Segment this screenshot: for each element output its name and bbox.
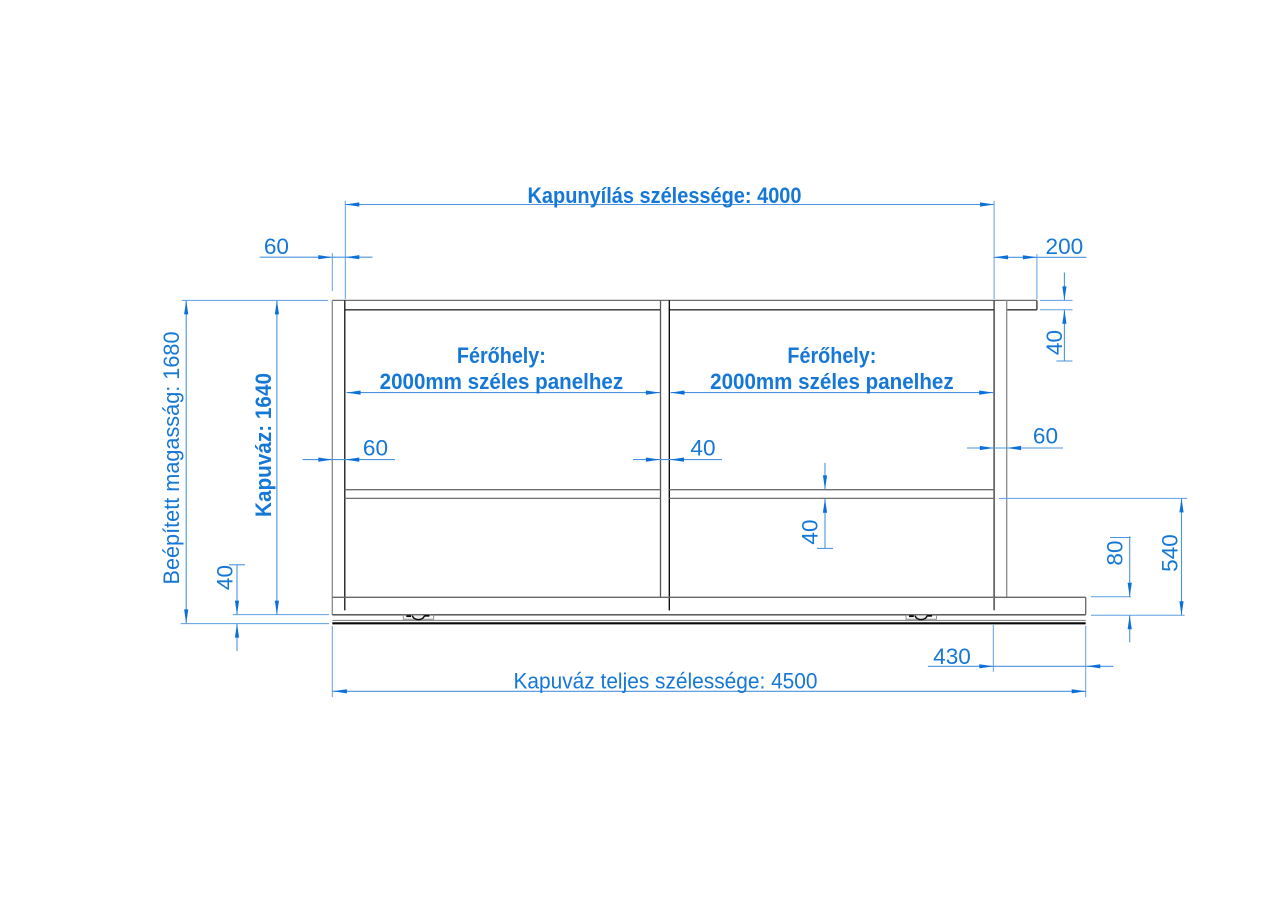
svg-text:Kapunyílás szélessége: 4000: Kapunyílás szélessége: 4000: [528, 183, 802, 208]
svg-text:2000mm széles panelhez: 2000mm széles panelhez: [380, 369, 624, 394]
svg-text:40: 40: [798, 519, 823, 544]
svg-text:40: 40: [213, 565, 238, 590]
svg-text:60: 60: [1033, 424, 1058, 449]
svg-text:540: 540: [1158, 534, 1183, 572]
svg-text:Beépített magasság: 1680: Beépített magasság: 1680: [159, 332, 184, 585]
svg-text:Kapuváz: 1640: Kapuváz: 1640: [251, 373, 276, 517]
svg-text:40: 40: [1042, 330, 1067, 355]
svg-text:2000mm széles panelhez: 2000mm széles panelhez: [710, 369, 954, 394]
svg-text:60: 60: [264, 234, 289, 259]
svg-text:Férőhely:: Férőhely:: [787, 343, 876, 368]
svg-text:200: 200: [1046, 234, 1084, 259]
svg-text:60: 60: [363, 436, 388, 461]
svg-text:Kapuváz teljes szélessége: 450: Kapuváz teljes szélessége: 4500: [514, 668, 818, 693]
svg-text:430: 430: [933, 644, 971, 669]
svg-text:40: 40: [690, 436, 715, 461]
svg-text:Férőhely:: Férőhely:: [457, 343, 546, 368]
svg-text:80: 80: [1103, 540, 1128, 565]
